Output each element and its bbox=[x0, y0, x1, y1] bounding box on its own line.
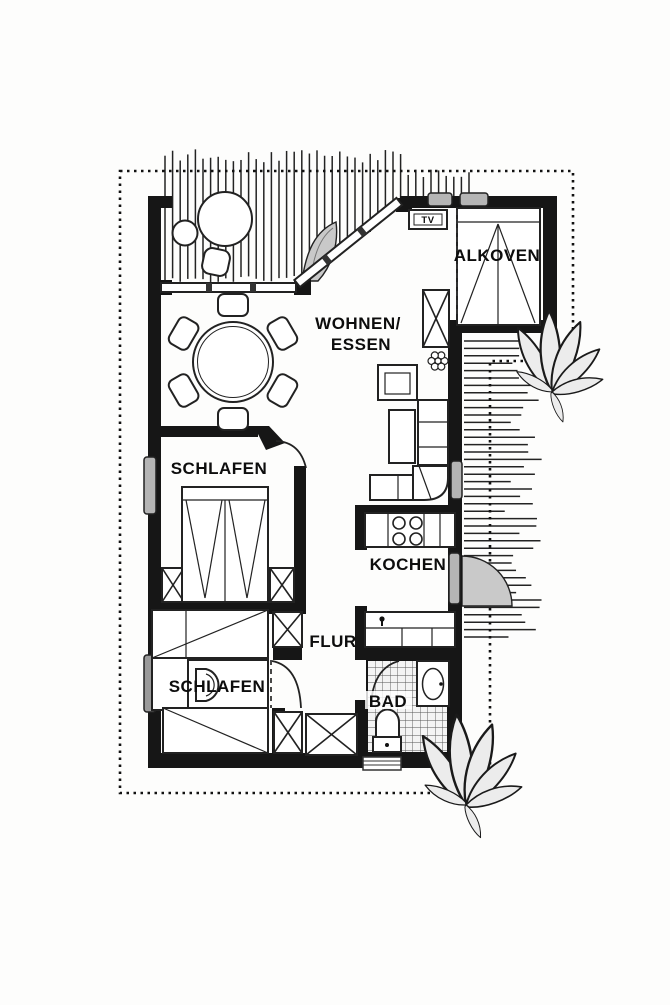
dining-table bbox=[193, 322, 273, 402]
shrub-icon bbox=[173, 221, 198, 246]
armchair bbox=[378, 365, 417, 400]
window-icon bbox=[460, 193, 488, 206]
label-schlafen-2: SCHLAFEN bbox=[169, 677, 266, 696]
single-bed bbox=[163, 708, 268, 753]
paper-background bbox=[0, 0, 670, 1005]
flower-pot-icon bbox=[201, 247, 232, 278]
wardrobe-x-icon bbox=[423, 290, 449, 347]
double-bed bbox=[182, 487, 268, 602]
terrace-window-band bbox=[161, 283, 296, 292]
floor-plan-canvas: TV bbox=[0, 0, 670, 1005]
label-schlafen-1: SCHLAFEN bbox=[171, 459, 268, 478]
single-bed bbox=[152, 610, 268, 658]
label-flur: FLUR bbox=[309, 632, 356, 651]
small-flower-icon bbox=[428, 352, 448, 370]
tv-label: TV bbox=[421, 215, 434, 226]
bath-step-mat bbox=[363, 757, 401, 770]
wardrobe-x-icon bbox=[306, 714, 357, 755]
floor-plan-page: TV bbox=[0, 0, 670, 1005]
wardrobe-x-icon bbox=[162, 568, 184, 602]
window-icon bbox=[451, 461, 462, 499]
coffee-table bbox=[389, 410, 415, 463]
kitchen-counter-stove bbox=[365, 513, 455, 547]
toilet-icon bbox=[373, 710, 401, 753]
tv-box: TV bbox=[409, 210, 447, 229]
wardrobe-x-icon bbox=[273, 612, 302, 647]
label-wohnen-essen-2: ESSEN bbox=[331, 335, 391, 354]
label-alkoven: ALKOVEN bbox=[454, 246, 541, 265]
wardrobe-x-icon bbox=[270, 568, 294, 602]
kitchen-counter-sink bbox=[365, 612, 455, 647]
label-kochen: KOCHEN bbox=[370, 555, 447, 574]
tree-icon bbox=[198, 192, 252, 246]
washbasin-icon bbox=[417, 661, 449, 706]
label-bad: BAD bbox=[369, 692, 407, 711]
label-wohnen-essen-1: WOHNEN/ bbox=[315, 314, 401, 333]
window-icon bbox=[449, 553, 460, 604]
wardrobe-x-icon bbox=[274, 712, 302, 753]
window-icon bbox=[144, 457, 156, 514]
alcove-bed bbox=[457, 208, 540, 325]
window-icon bbox=[428, 193, 452, 206]
